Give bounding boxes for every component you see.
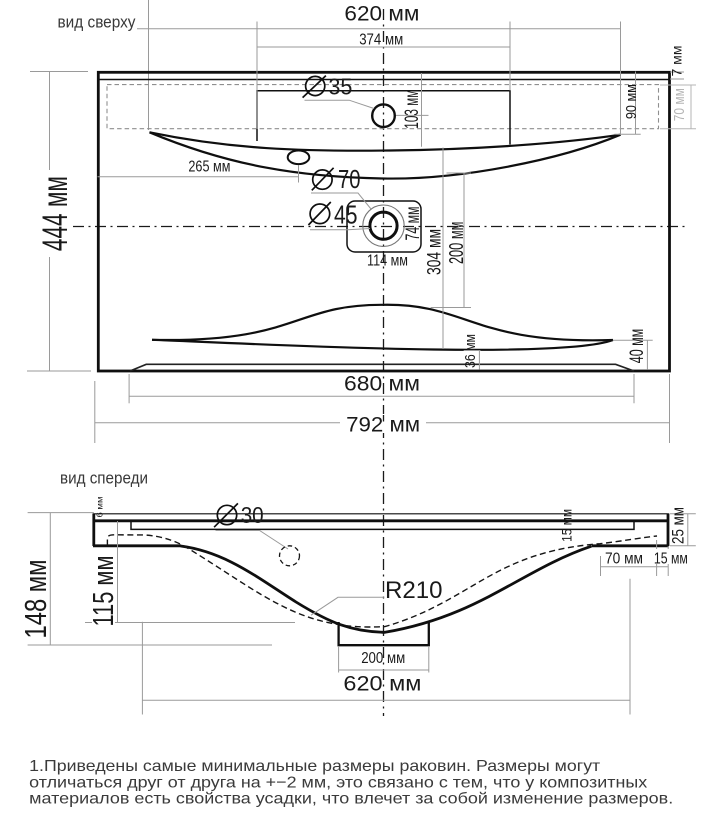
svg-text:200 мм: 200 мм	[446, 222, 468, 264]
svg-text:265 мм: 265 мм	[188, 158, 230, 175]
svg-text:7 мм: 7 мм	[669, 46, 685, 77]
svg-text:1.Приведены самые минимальные: 1.Приведены самые минимальные размеры ра…	[29, 758, 601, 775]
svg-text:200 мм: 200 мм	[361, 650, 405, 667]
svg-text:35: 35	[328, 74, 352, 100]
svg-text:74 мм: 74 мм	[403, 207, 424, 241]
svg-text:115 мм: 115 мм	[88, 556, 120, 627]
svg-text:70: 70	[338, 164, 361, 194]
svg-text:30: 30	[241, 502, 264, 528]
svg-text:444 мм: 444 мм	[36, 176, 75, 251]
svg-text:материалов есть свойства усадк: материалов есть свойства усадки, что вле…	[29, 791, 673, 808]
svg-text:70 мм: 70 мм	[671, 88, 688, 121]
svg-text:70 мм: 70 мм	[605, 550, 643, 567]
svg-text:вид спереди: вид спереди	[60, 469, 148, 488]
svg-text:36 мм: 36 мм	[463, 334, 479, 368]
svg-text:45: 45	[334, 200, 358, 230]
svg-text:отличаться друг от друга на +−: отличаться друг от друга на +−2 мм, это …	[29, 774, 647, 791]
svg-text:304 мм: 304 мм	[424, 229, 446, 275]
svg-text:680 мм: 680 мм	[344, 372, 420, 395]
svg-text:103 мм: 103 мм	[401, 90, 423, 129]
svg-text:вид сверху: вид сверху	[58, 13, 136, 32]
svg-text:90 мм: 90 мм	[623, 84, 640, 119]
svg-text:R210: R210	[385, 577, 443, 604]
svg-text:374 мм: 374 мм	[359, 32, 403, 49]
svg-text:620 мм: 620 мм	[343, 672, 421, 695]
svg-text:25 мм: 25 мм	[669, 507, 688, 544]
svg-text:620 мм: 620 мм	[344, 3, 419, 26]
svg-text:15 мм: 15 мм	[560, 509, 575, 542]
svg-text:40 мм: 40 мм	[627, 329, 648, 364]
svg-text:148 мм: 148 мм	[18, 560, 53, 639]
svg-text:15 мм: 15 мм	[654, 550, 688, 567]
svg-text:114 мм: 114 мм	[367, 253, 408, 270]
svg-text:6 мм: 6 мм	[94, 496, 104, 517]
